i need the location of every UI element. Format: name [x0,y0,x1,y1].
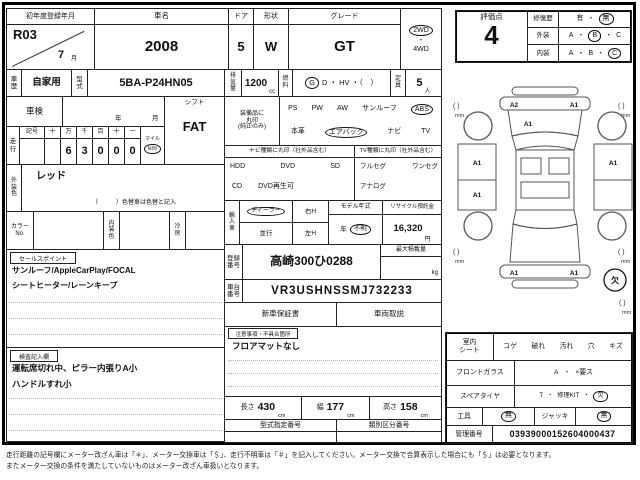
fuel-label: 燃 料 [278,69,293,97]
sales-points-tag: セールスポイント [10,252,76,264]
mileage-label: 走 行 [6,126,20,165]
nav-hdd: HDD [230,163,245,171]
fuel-options: D ・ HV ・（ ） [322,79,378,87]
door-header: ドア [228,8,254,25]
type-classification-value-cell [336,431,442,443]
interior-b: B [588,50,593,58]
windshield-x: ×要ス [575,369,593,376]
wheel-front-left [464,112,492,140]
equip-ps: PS [288,105,297,113]
displacement-unit: cc [269,89,275,96]
tv-fullseg: フルセグ [360,163,386,170]
width-label: 幅 [317,404,324,412]
seat-options-cell: コゲ 破れ 汚れ 穴 キズ [493,332,633,361]
trunk [510,224,580,262]
capacity-label: 定 員 [390,69,406,97]
tools-label: 工具 [445,407,483,426]
sales-points-line2: シートヒーター/レーンキープ [12,281,117,290]
seat-right [549,158,569,174]
auction-sheet: 初年度登録年月 車名 ドア 形状 グレード 2WD ・ 4WD R03 7 月 … [0,0,640,480]
mark-front-bumper-left: A2 [510,102,519,109]
grade-value: GT [288,24,401,70]
drive-type-cell: 2WD ・ 4WD [400,8,442,70]
equip-aw: AW [337,105,348,113]
missing-part-mark: 欠 [611,275,619,285]
windshield-a: A [554,369,559,376]
seat-tear: 破れ [531,343,545,350]
equipment-label: 装備品に 丸印 (純正のみ) [224,96,280,146]
windshield-label: フロントガラス [445,360,515,386]
score-value: 4 [484,22,498,48]
car-damage-diagram: A2 A1 A1 A1 A1 A1 A1 A1 欠 ( ) mm ( ) mm … [452,76,638,330]
corner-mm-far-bottom-right: mm [622,310,632,316]
mileage-digit-10k: 6 [60,138,77,165]
mileage-unit-cell: マイル km [140,126,165,165]
interior-color-label: 内 装 色 [103,211,120,250]
corner-mm-top-right: mm [621,113,631,119]
model-code-value: 5BA-P24HN05 [87,69,225,97]
sales-points-line1: サンルーフ/AppleCarPlay/FOCAL [12,266,136,275]
seat-label: 室内 シート [445,332,494,361]
corner-mark-bottom-left: ( ) [453,249,460,256]
height-cell: 高さ 158 cm [369,396,442,420]
spare-tire-label: スペアタイヤ [445,385,515,408]
width-value: 177 [327,402,345,414]
spare-kit: 修理KIT [557,393,579,400]
rule-line [9,318,222,319]
corner-mark-top-left: ( ) [453,103,460,110]
recycle-yen: 円 [425,237,431,244]
equip-airbag-circled: エアバック [325,127,368,138]
spare-missing-circled: 欠 [593,391,607,401]
corner-mark-far-bottom-right: ( ) [619,300,626,307]
nav-cd: CD [232,183,242,191]
front-top-strip [512,87,578,95]
corner-mm-bottom-right: mm [621,259,631,265]
sep-dot: ・ [575,50,586,58]
rule-line [228,360,438,361]
mileage-digit-kigo [19,138,45,165]
first-reg-month: 7 [58,49,64,62]
capacity-value: 5 [416,77,422,89]
displacement-value: 1200 [245,78,267,89]
mileage-digit-100: 0 [92,138,109,165]
equip-pw: PW [312,105,323,113]
mgmt-number-label: 管理番号 [445,425,493,444]
shape-value: W [253,24,289,70]
exterior-c: C [616,32,621,40]
shift-value: FAT [183,120,207,134]
equip-tv: TV [421,128,430,136]
seat-burn: コゲ [503,343,517,350]
tv-items-row1: フルセグ ワンセグ [360,163,438,170]
color-no-label: カラー No. [6,211,34,250]
equip-sunroof: サンルーフ [362,105,397,113]
shaken-year-unit: 年 [115,115,122,122]
chassis-number: VR3USHNSSMJ732233 [242,279,442,303]
mark-left-rear-door: A1 [473,192,482,199]
registration-label: 登録 番号 [224,244,243,280]
ac-label: 冷 房 [169,211,186,250]
length-label: 長さ [241,404,255,412]
fuel-g-circled: G [305,77,319,89]
length-cell: 長さ 430 cm [224,396,302,420]
import-right-handle: 右H [292,200,329,223]
history-value: 自家用 [21,69,72,97]
sep-dot: ・ [595,50,606,58]
mileage-digit-1k: 3 [76,138,93,165]
recycle-value: 16,320 [393,224,422,234]
rule-line [9,334,222,335]
shift-label: シフト [185,97,205,106]
shaken-month-unit: 月 [152,115,159,122]
first-reg-year: R03 [13,28,37,43]
mark-front-bumper-right: A1 [570,102,579,109]
seat-scratch: キズ [609,343,623,350]
exterior-grade-label: 外装 [527,27,559,45]
car-name-value: 2008 [94,24,229,70]
equip-leather: 本革 [291,128,305,136]
exterior-a: A [569,32,574,40]
equip-navi: ナビ [387,128,401,136]
corner-mark-bottom-right: ( ) [618,249,625,256]
inspector-note-line2: ハンドルすれ小 [12,380,72,390]
model-year-unit: 年 [340,226,347,233]
rule-line [228,386,438,387]
sep-dot: ・ [575,32,586,40]
ext-color-note: （ ）色替車は色替と記入 [92,200,176,207]
repair-history-cell: 有 ・ 無 [558,10,632,28]
displacement-cell: 1200 cc [241,69,279,97]
max-load-cell: kg [380,256,442,280]
wheel-rear-left [464,212,492,240]
mile-unit-label: マイル [145,137,160,143]
spare-tire-cell: T ・ 修理KIT ・ 欠 [514,385,633,408]
rule-line [9,302,222,303]
displacement-label: 排 気 量 [224,69,242,97]
wheel-rear-right [598,212,626,240]
windshield [512,132,578,150]
windshield-cell: A ・ ×要ス [514,360,633,386]
first-reg-month-unit: 月 [71,56,77,63]
meter-disclaimer-line1: 走行距離の記号欄にメーター改ざん車は「＊」、メーター交換車は「＄」、走行不明車は… [6,452,636,460]
mileage-digit-10: 0 [108,138,125,165]
sep-dot: ・ [586,15,597,23]
interior-a: A [569,50,574,58]
roof [516,150,574,210]
jack-cell: 無 [575,407,633,426]
ext-color-label: 外 装 色 [6,164,22,212]
capacity-unit: 人 [425,89,431,96]
jack-label: ジャッキ [534,407,576,426]
cautions-tag: 注意事項・不具合箇所 [228,328,298,339]
mark-rear-bumper-left: A1 [510,270,519,277]
mileage-digit-100k [44,138,61,165]
model-code-label: 型 式 [71,69,88,97]
nav-sd: SD [330,163,340,171]
height-value: 158 [400,402,418,414]
model-year-header: モデル年式 [328,200,383,215]
corner-mark-top-right: ( ) [618,103,625,110]
capacity-cell: 5 人 [405,69,442,97]
history-label: 車 歴 [6,69,22,97]
door-value: 5 [228,24,254,70]
length-value: 430 [258,402,276,414]
import-left-handle: 左H [292,222,329,245]
first-reg-header: 初年度登録年月 [6,8,95,25]
drive-dot: ・ [418,37,425,45]
drive-4wd: 4WD [413,46,429,54]
type-designation-value-cell [224,431,337,443]
nav-header: ナビ種類に丸印（社外品含む） [224,145,355,158]
spare-t: T [539,393,543,400]
mgmt-number-value: 03939000152604000437 [492,425,633,444]
cautions-line1: フロアマットなし [232,342,300,352]
shaken-label: 車検 [6,96,63,127]
height-label: 高さ [383,404,397,412]
shift-cell: シフト FAT [164,96,225,165]
repair-history-label: 修復歴 [527,10,559,28]
rear-bottom-strip [512,280,578,288]
tools-none-circled: 無 [501,411,516,422]
model-year-cell: 年 不明 [328,214,383,245]
repair-yes: 有 [577,15,584,23]
chassis-label: 車台 番号 [224,279,243,303]
tv-header: TV種類に丸印（社外品含む） [354,145,442,158]
corner-mm-top-left: mm [455,113,465,119]
fuel-cell: G D ・ HV ・（ ） [292,69,391,97]
mark-left-front-door: A1 [473,160,482,167]
meter-disclaimer-line2: またメーター交換の条件を満たしていないものはメーター改ざん車扱いとなります。 [6,463,636,471]
warranty-doc-cell: 新車保証書 [224,302,337,327]
equipment-row2: 本革 エアバック ナビ TV [281,122,440,143]
seat-left [521,158,541,174]
rear-bench [521,182,569,198]
seat-hole: 穴 [588,343,595,350]
grade-header: グレード [288,8,401,25]
repair-no-circled: 無 [599,13,614,24]
exterior-grade-cell: A ・ B ・ C [558,27,632,45]
drive-2wd-circled: 2WD [409,25,433,36]
recycle-cell: 16,320 円 [382,214,442,245]
car-name-header: 車名 [94,8,229,25]
ac-value-cell [185,211,225,250]
mark-rear-bumper-right: A1 [570,270,579,277]
tv-oneseg: ワンセグ [412,163,438,170]
nav-items-row1: HDD DVD SD [230,163,340,171]
shape-header: 形状 [253,8,289,25]
interior-c-circled: C [608,48,621,59]
sep-dot: ・ [562,369,573,376]
rule-line [9,430,222,431]
sep-dot: ・ [581,393,591,400]
interior-grade-cell: A ・ B ・ C [558,44,632,63]
nav-items-row2: CD DVD再生可 [232,183,332,191]
corner-mm-bottom-left: mm [455,259,465,265]
color-no-value-cell [33,211,104,250]
exterior-b-circled: B [588,30,601,41]
equipment-row1: PS PW AW サンルーフ ABS [281,99,440,120]
import-dealer-circled: ディーラー [247,207,285,217]
import-parallel: 並行 [239,222,293,245]
km-unit-circled: km [144,144,161,154]
sep-dot: ・ [603,32,614,40]
score-cell: 評価点 4 [455,10,528,63]
tools-cell: 無 [482,407,535,426]
tv-analog: アナログ [360,183,386,190]
equip-abs-circled: ABS [411,104,433,115]
interior-grade-label: 内装 [527,44,559,63]
import-label: 輸 入 車 [224,200,240,245]
sep-dot: ・ [545,393,555,400]
jack-none-circled: 無 [597,411,612,422]
mark-right-front-door: A1 [609,160,618,167]
shaken-value-cell [62,96,165,127]
right-rear-door-panel [594,180,632,210]
ext-color-value: レッド [36,171,66,183]
nav-dvd-play: DVD再生可 [258,183,294,191]
registration-number: 高崎300ひ0288 [242,244,381,280]
rule-line [9,398,222,399]
manual-doc-cell: 車両取説 [336,302,442,327]
rule-line [228,373,438,374]
interior-color-value-cell [119,211,170,250]
mileage-digit-1: 0 [124,138,141,165]
mark-hood: A1 [524,121,533,128]
rule-line [9,414,222,415]
recycle-header: リサイクル預託金 [382,200,442,215]
inspector-notes-tag: 検査記入欄 [10,350,58,362]
rear-window [513,210,577,229]
seat-stain: 汚れ [560,343,574,350]
width-cell: 幅 177 cm [301,396,370,420]
model-year-unknown-circled: 不明 [350,224,371,234]
nav-dvd: DVD [280,163,295,171]
import-dealer-cell: ディーラー [239,200,293,223]
inspector-note-line1: 運転席切れ中、ピラー内張りA小 [12,364,137,374]
